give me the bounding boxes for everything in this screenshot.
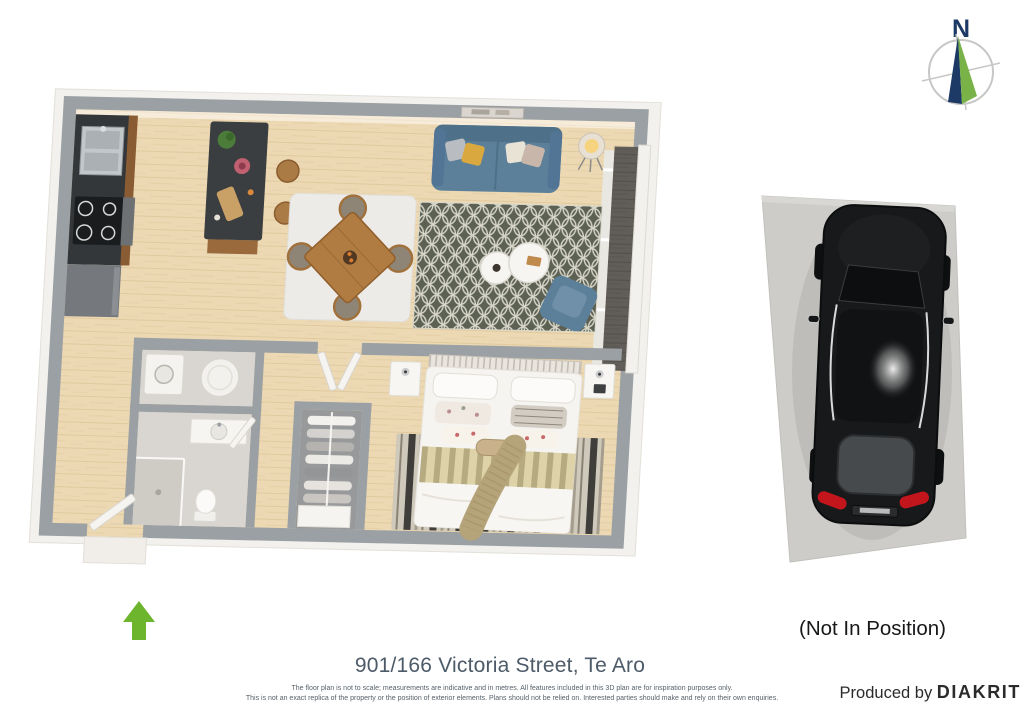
mirror-right <box>943 317 954 324</box>
mirror-left <box>808 315 819 322</box>
sofa <box>431 124 563 193</box>
floor-plan <box>28 89 661 575</box>
pillow <box>510 376 576 403</box>
wardrobe <box>295 409 362 529</box>
bedroom <box>381 353 615 534</box>
diakrit-logo: DIAKRIT <box>937 682 1021 702</box>
dresser <box>297 505 350 527</box>
dining-area <box>283 193 416 322</box>
living-area <box>413 106 611 334</box>
pillow <box>432 373 498 400</box>
bed <box>413 354 583 533</box>
bathroom <box>132 350 260 527</box>
floorplan-scene: N <box>0 0 1024 724</box>
wall-art <box>461 107 524 118</box>
rear-window <box>837 435 915 496</box>
shower <box>132 458 184 526</box>
stove <box>72 196 123 245</box>
windshield <box>839 265 927 309</box>
footer: Produced by DIAKRIT <box>840 682 1021 703</box>
compass-icon: N <box>922 15 1000 110</box>
pillow-floral <box>434 401 492 426</box>
page-title: 901/166 Victoria Street, Te Aro <box>0 654 1000 678</box>
kitchen-island <box>203 121 269 254</box>
car-illustration <box>762 196 966 562</box>
car <box>799 203 959 527</box>
compass-north-label: N <box>952 15 970 43</box>
produced-by-label: Produced by <box>840 684 933 702</box>
kitchen-sink <box>80 125 125 175</box>
car-status-label: (Not In Position) <box>770 617 975 641</box>
entrance-arrow-icon <box>123 601 155 640</box>
entry-step <box>83 537 146 564</box>
